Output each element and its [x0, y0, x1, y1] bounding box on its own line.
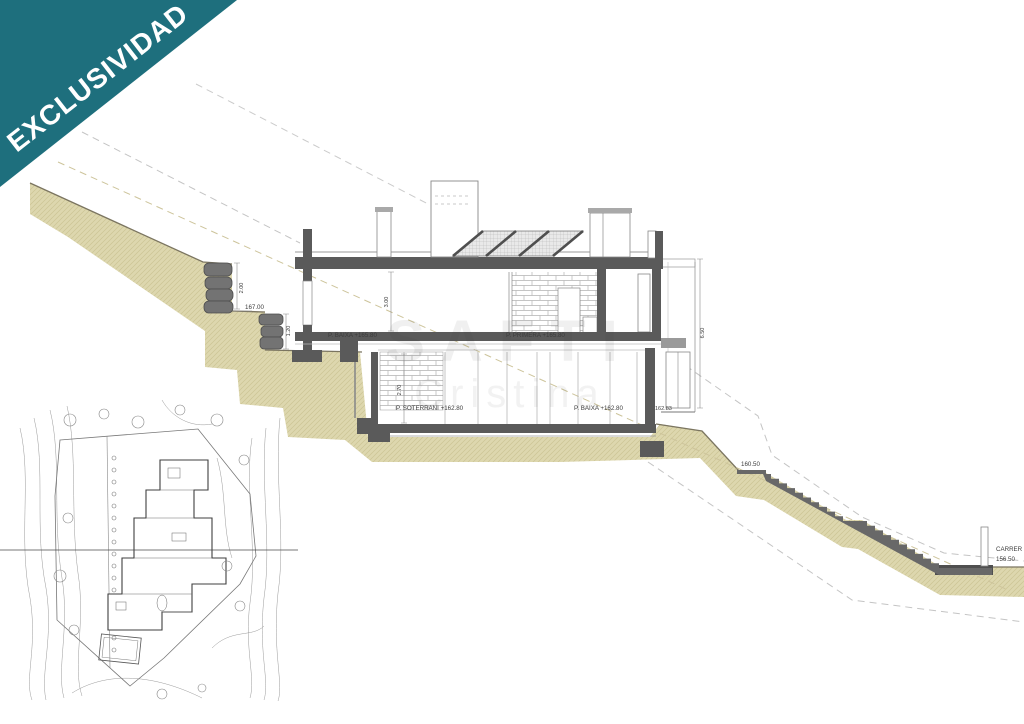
dim-lower-height: 2.70 — [397, 385, 403, 396]
lower-floor-slab — [374, 424, 656, 433]
dim-rockwall-upper: 2.00 — [239, 283, 245, 294]
elevation-terrace: 167.00 — [245, 304, 264, 311]
street-name-label: CARRER — [996, 546, 1023, 553]
floor-label-soterrani: P. SOTERRANI +162.80 — [396, 405, 464, 412]
street-elevation-label: 156.50 — [996, 556, 1015, 563]
window-right — [638, 274, 650, 332]
site-plan — [0, 400, 298, 701]
floor-label-baixa-lower: P. BAIXA +162.80 — [574, 405, 623, 412]
roof-slab — [295, 257, 661, 269]
masonry-wall-lower — [380, 352, 443, 410]
elevation-slope-mid: 160.50 — [741, 461, 760, 468]
dim-upper-height: 3.00 — [384, 297, 390, 308]
exterior-stairs — [737, 470, 993, 575]
section-drawing: 167.00 2.00 1.20 3.00 2.70 6.50 P. BAIXA… — [0, 0, 1024, 724]
door-opening — [558, 288, 580, 337]
lower-floor-mullions — [445, 352, 637, 424]
street-wall-post — [981, 527, 988, 566]
chimney-small — [375, 207, 393, 257]
annex-roof-slab — [661, 259, 695, 267]
dim-annex-height: 6.50 — [700, 328, 706, 339]
blueprint-canvas: 167.00 2.00 1.20 3.00 2.70 6.50 P. BAIXA… — [0, 0, 1024, 724]
right-annex — [661, 262, 695, 412]
floor-label-baixa-upper: P. BAIXA +165.80 — [328, 332, 377, 339]
elevation-annex-base: 162.83 — [655, 406, 672, 412]
house-footprint — [108, 460, 226, 630]
chimney-right — [588, 208, 632, 257]
left-parapet — [303, 229, 312, 259]
left-wall-glazing — [303, 281, 312, 325]
dim-rockwall-lower: 1.20 — [286, 326, 292, 337]
pool — [99, 634, 141, 664]
left-wall-footing — [292, 350, 322, 362]
floor-label-primera: P. PRIMERA +165.80 — [506, 332, 565, 339]
right-footing — [640, 441, 664, 457]
stair-landing-top — [737, 470, 766, 474]
